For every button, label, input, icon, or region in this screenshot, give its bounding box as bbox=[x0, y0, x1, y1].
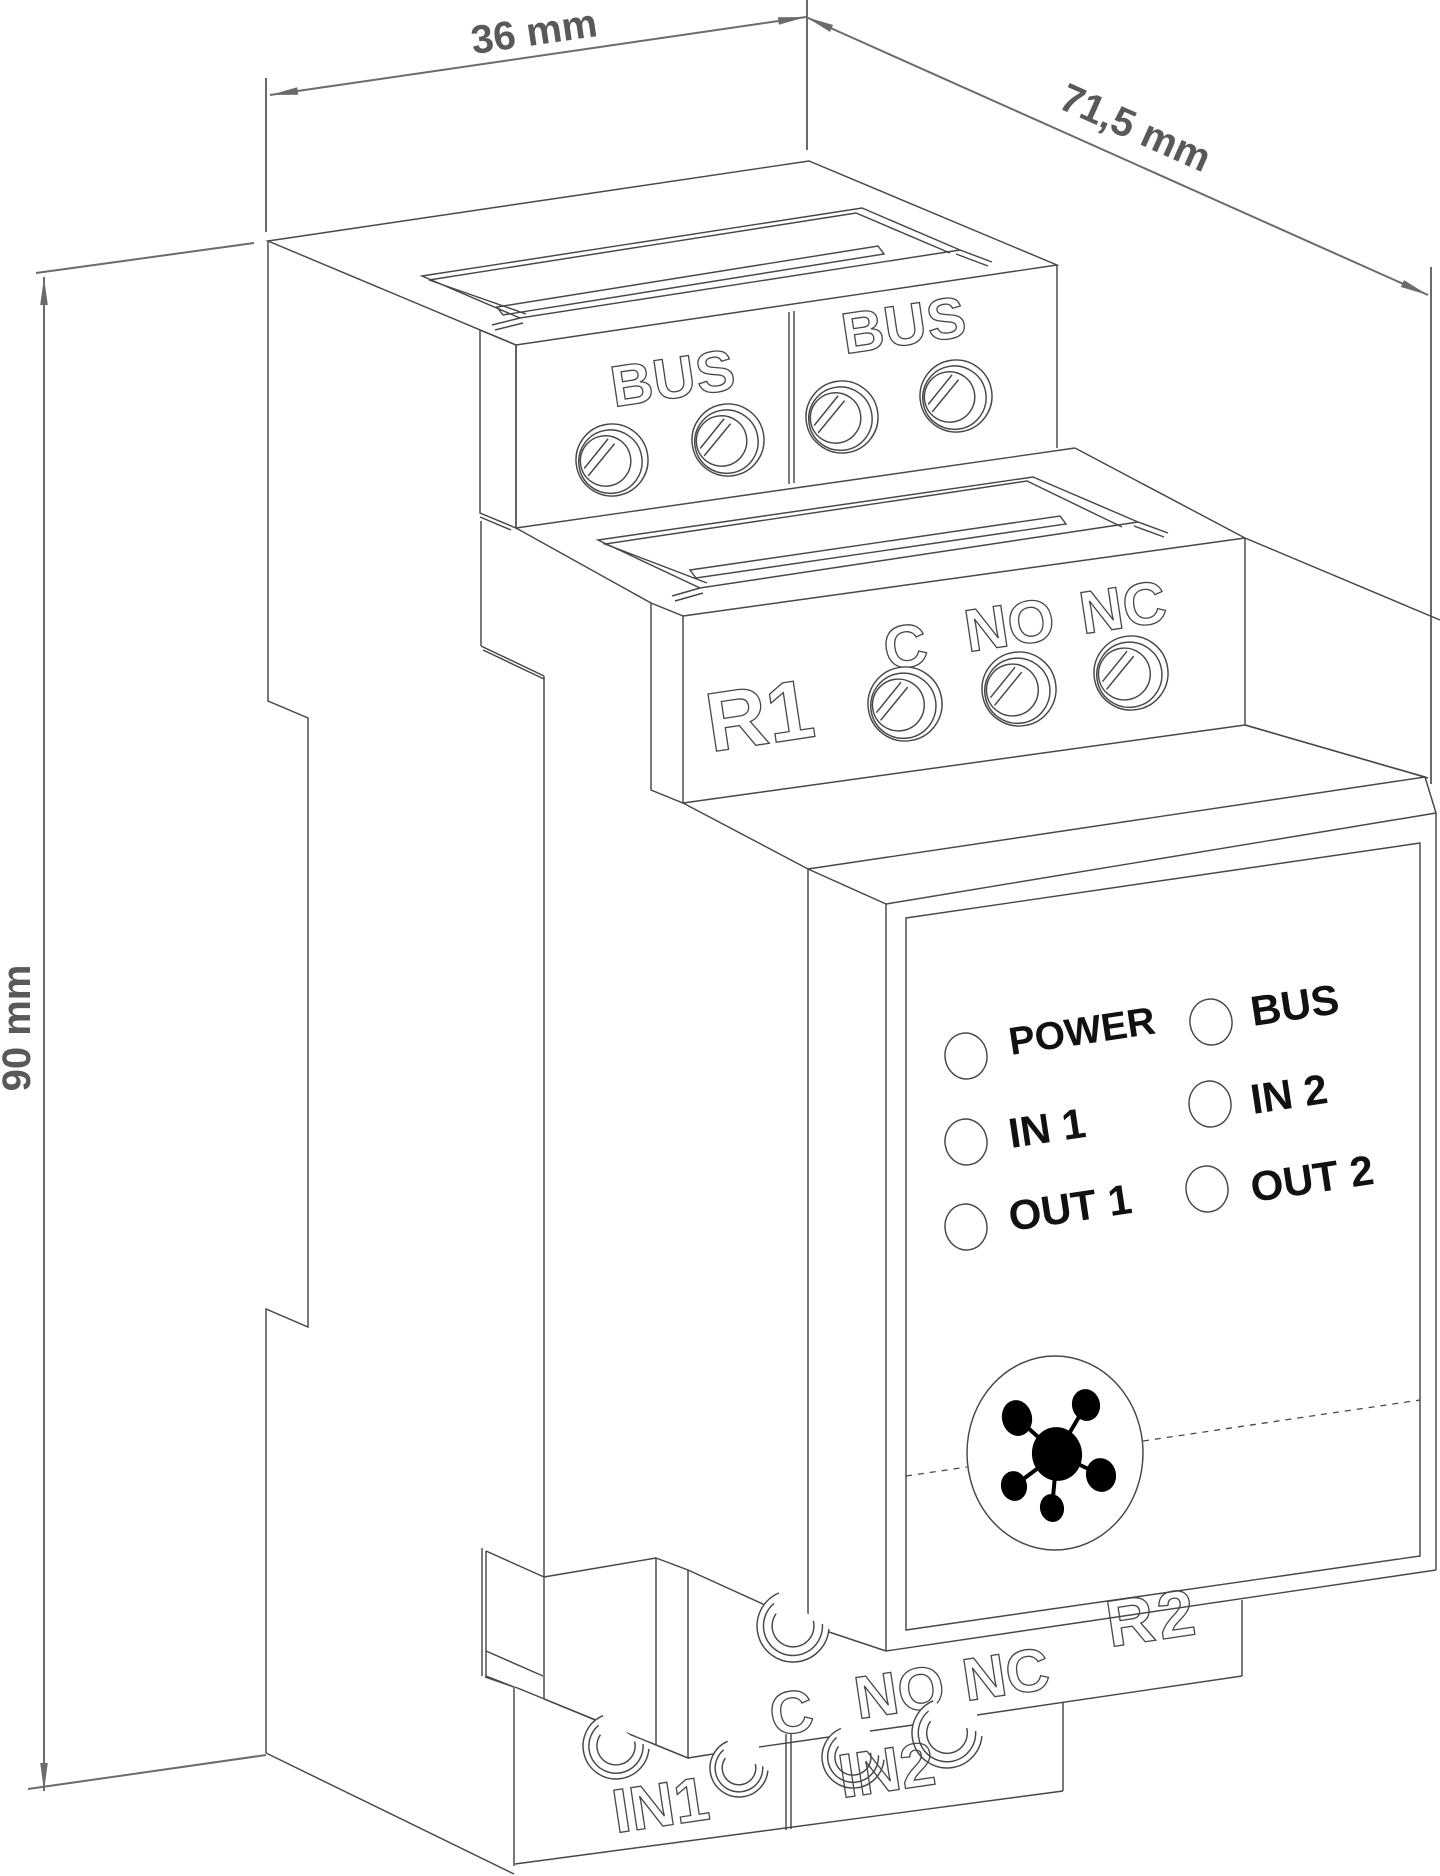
svg-text:IN1: IN1 bbox=[608, 1764, 714, 1847]
svg-text:NC: NC bbox=[1075, 568, 1171, 647]
svg-text:NC: NC bbox=[958, 1635, 1054, 1714]
svg-text:IN2: IN2 bbox=[834, 1729, 940, 1812]
svg-text:R1: R1 bbox=[700, 661, 820, 770]
svg-text:90 mm: 90 mm bbox=[0, 965, 39, 1092]
svg-text:R2: R2 bbox=[1101, 1574, 1203, 1661]
